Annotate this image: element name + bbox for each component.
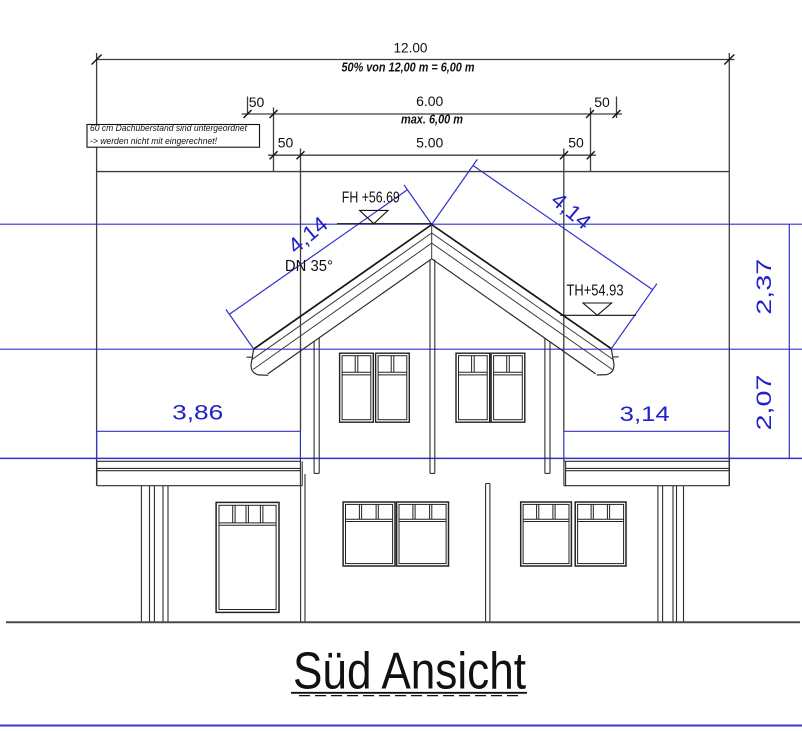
svg-text:3,86: 3,86 (172, 402, 223, 425)
svg-text:6.00: 6.00 (416, 93, 443, 109)
svg-text:60 cm Dachüberstand sind unter: 60 cm Dachüberstand sind untergeordnet (90, 123, 247, 134)
svg-text:12.00: 12.00 (394, 40, 428, 56)
svg-text:5.00: 5.00 (416, 134, 443, 150)
svg-text:DN 35°: DN 35° (285, 258, 333, 275)
svg-text:2,37: 2,37 (753, 259, 776, 315)
svg-text:50: 50 (249, 94, 265, 110)
svg-text:50: 50 (278, 134, 294, 150)
svg-text:50% von 12,00 m = 6,00 m: 50% von 12,00 m = 6,00 m (342, 61, 475, 75)
svg-text:50: 50 (594, 94, 610, 110)
svg-text:-> werden nicht mit eingerechn: -> werden nicht mit eingerechnet! (90, 136, 217, 147)
svg-text:2,07: 2,07 (753, 375, 776, 431)
svg-text:3,14: 3,14 (620, 403, 670, 426)
svg-text:max. 6,00 m: max. 6,00 m (401, 113, 463, 127)
svg-text:FH +56.69: FH +56.69 (342, 189, 400, 206)
svg-text:50: 50 (568, 134, 584, 150)
svg-text:TH+54.93: TH+54.93 (567, 282, 624, 299)
